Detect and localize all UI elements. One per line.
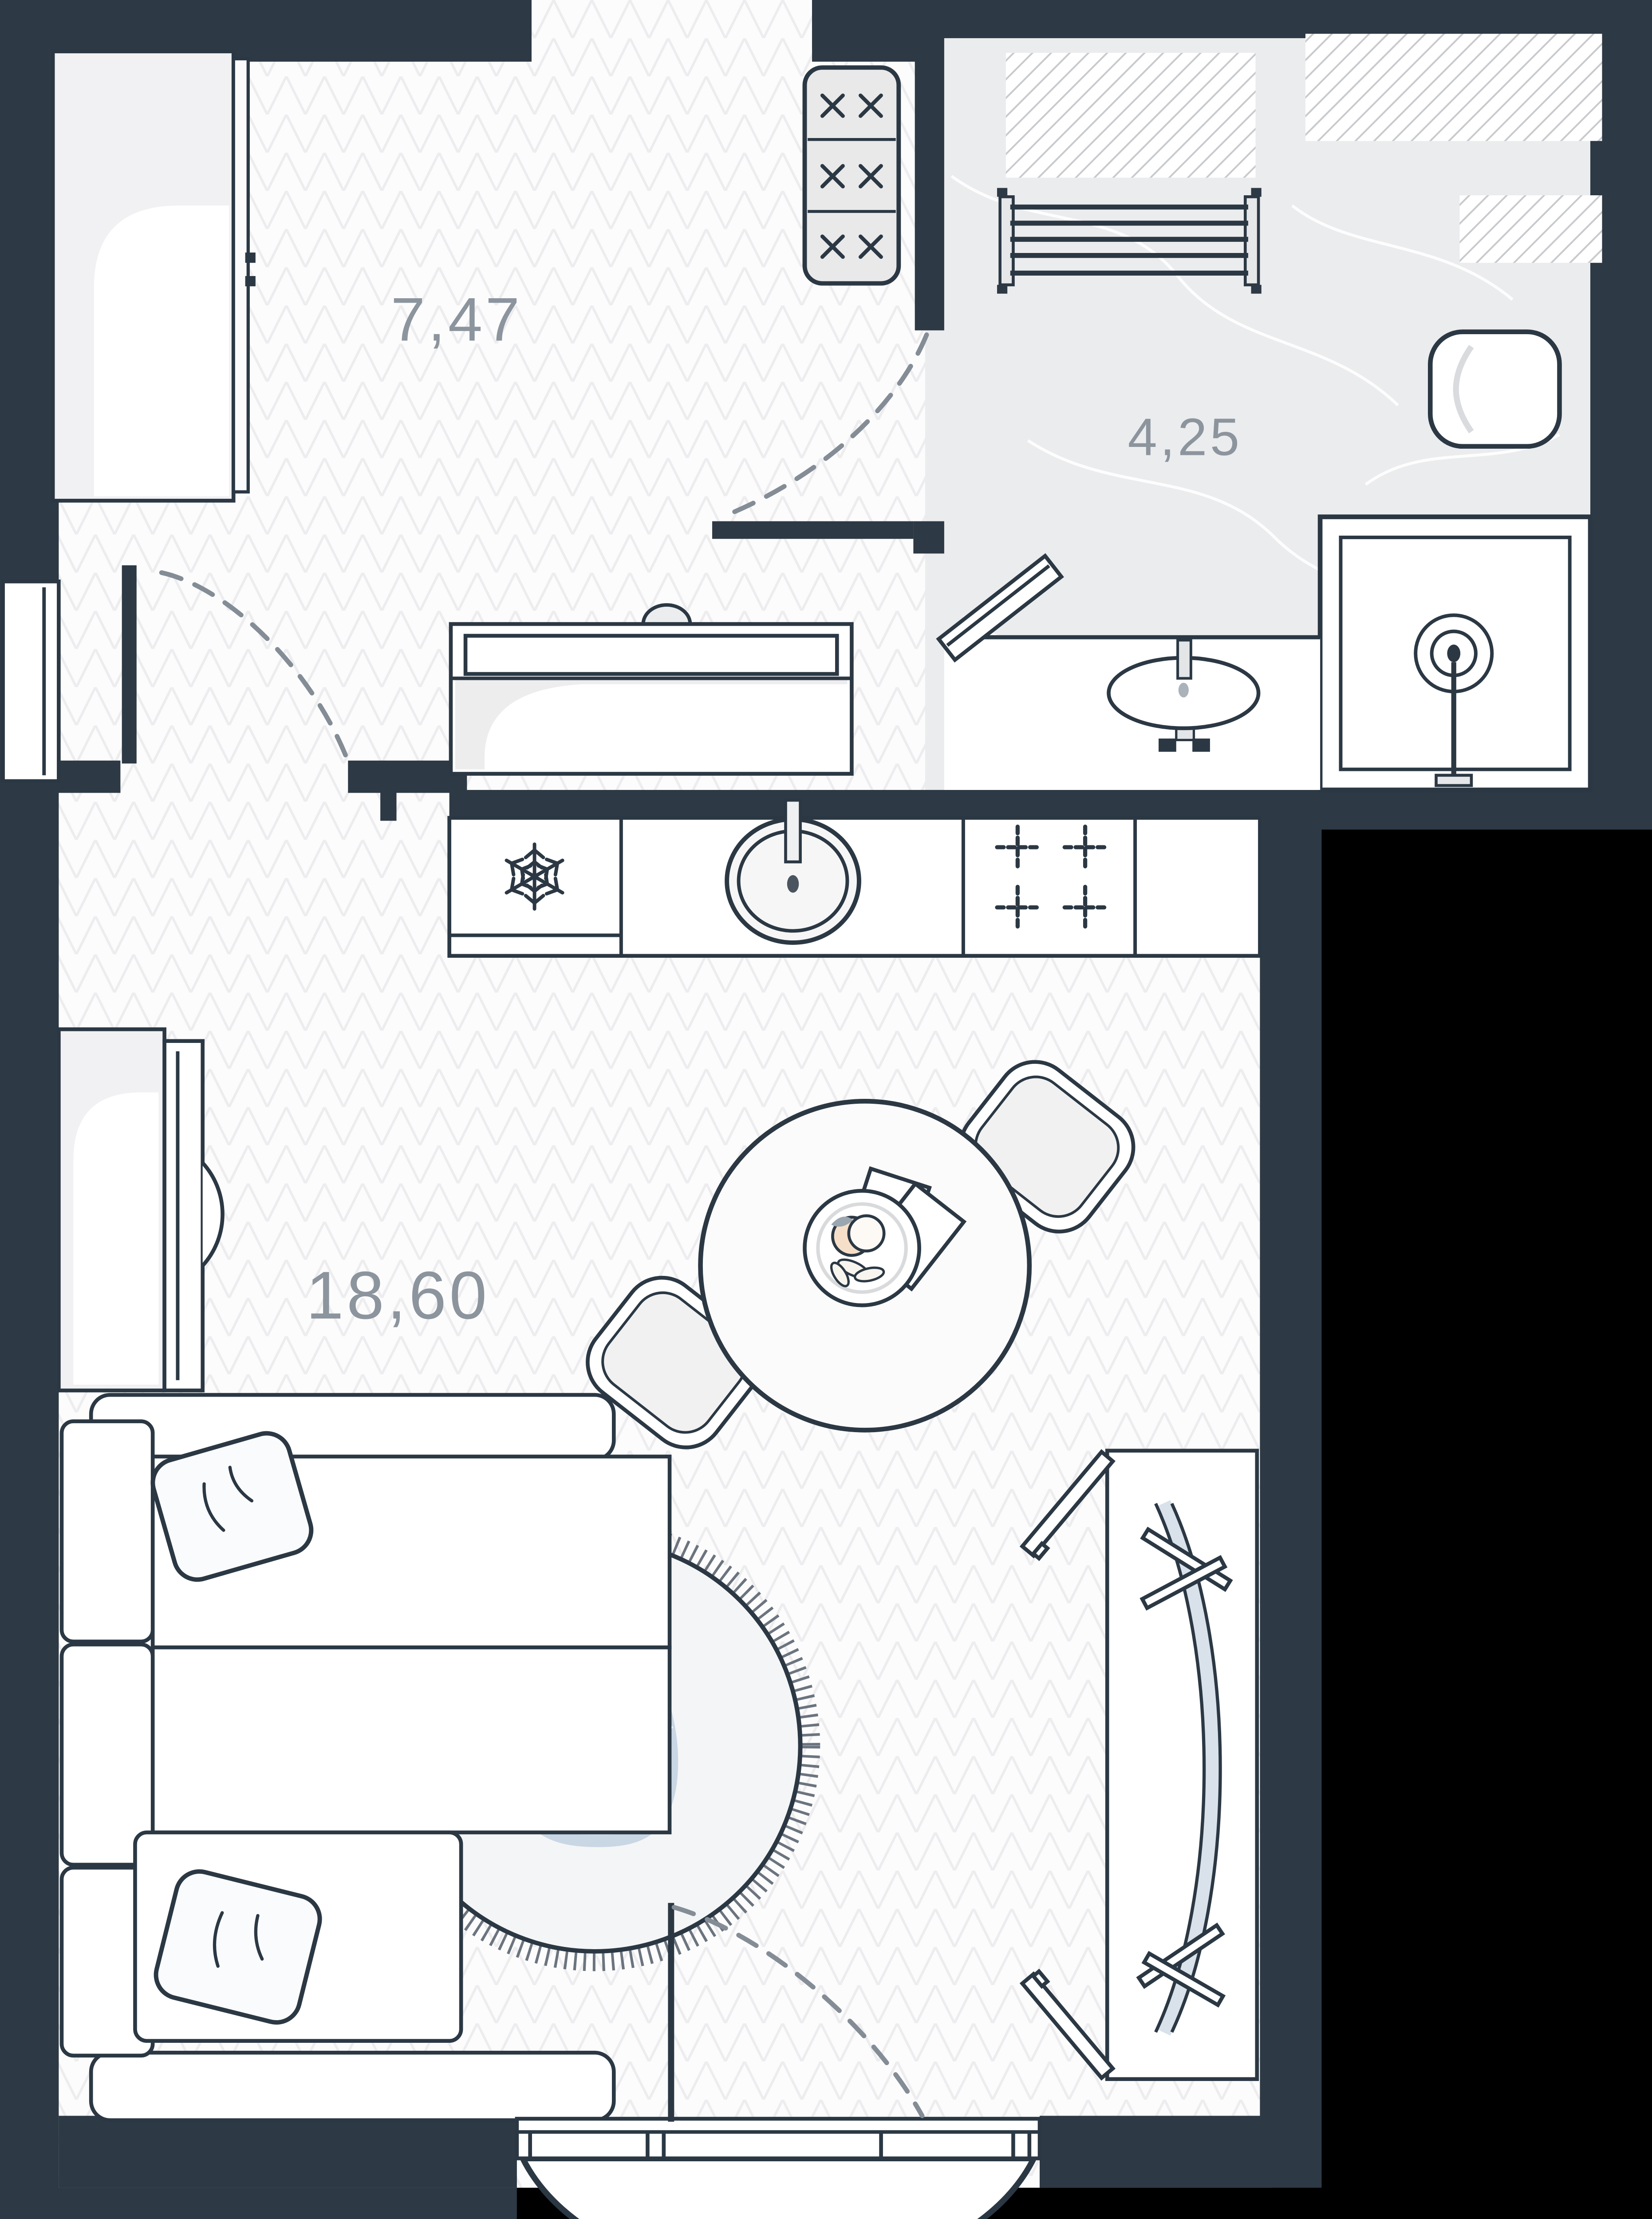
shower-icon [1320,517,1590,790]
outside-area-right [1321,829,1652,2219]
fruit-plate-icon [805,1191,919,1305]
toilet-icon [1430,332,1559,446]
kitchen-back-wall [449,790,1590,818]
living-area-label: 18,60 [306,1258,490,1333]
floor-plan-canvas: 7,47 4,25 18,60 [0,0,1652,2219]
living-right-wall [1260,790,1321,2188]
ventilation-shaft-icon [1305,34,1602,141]
sliding-wardrobe-icon [53,51,256,501]
bench-icon [805,67,899,283]
entry-door-jamb [122,565,137,764]
washing-machine-icon [451,605,852,774]
bottom-wall-left [59,2116,517,2187]
ventilation-shaft-icon [1459,195,1602,263]
dresser-icon [59,1029,164,1390]
balcony-door-sill [517,2119,1040,2158]
hall-bath-wall [712,521,913,539]
bathroom-area-label: 4,25 [1128,408,1242,467]
bottom-wall-right [1040,2116,1321,2187]
entry-door [3,581,59,781]
ventilation-shaft-icon [1006,53,1256,178]
floor-plan: 7,47 4,25 18,60 [0,0,1652,2219]
hallway-area-label: 7,47 [391,285,523,354]
sofa-seat [153,1647,670,1832]
bathroom-partition-wall [915,0,944,330]
